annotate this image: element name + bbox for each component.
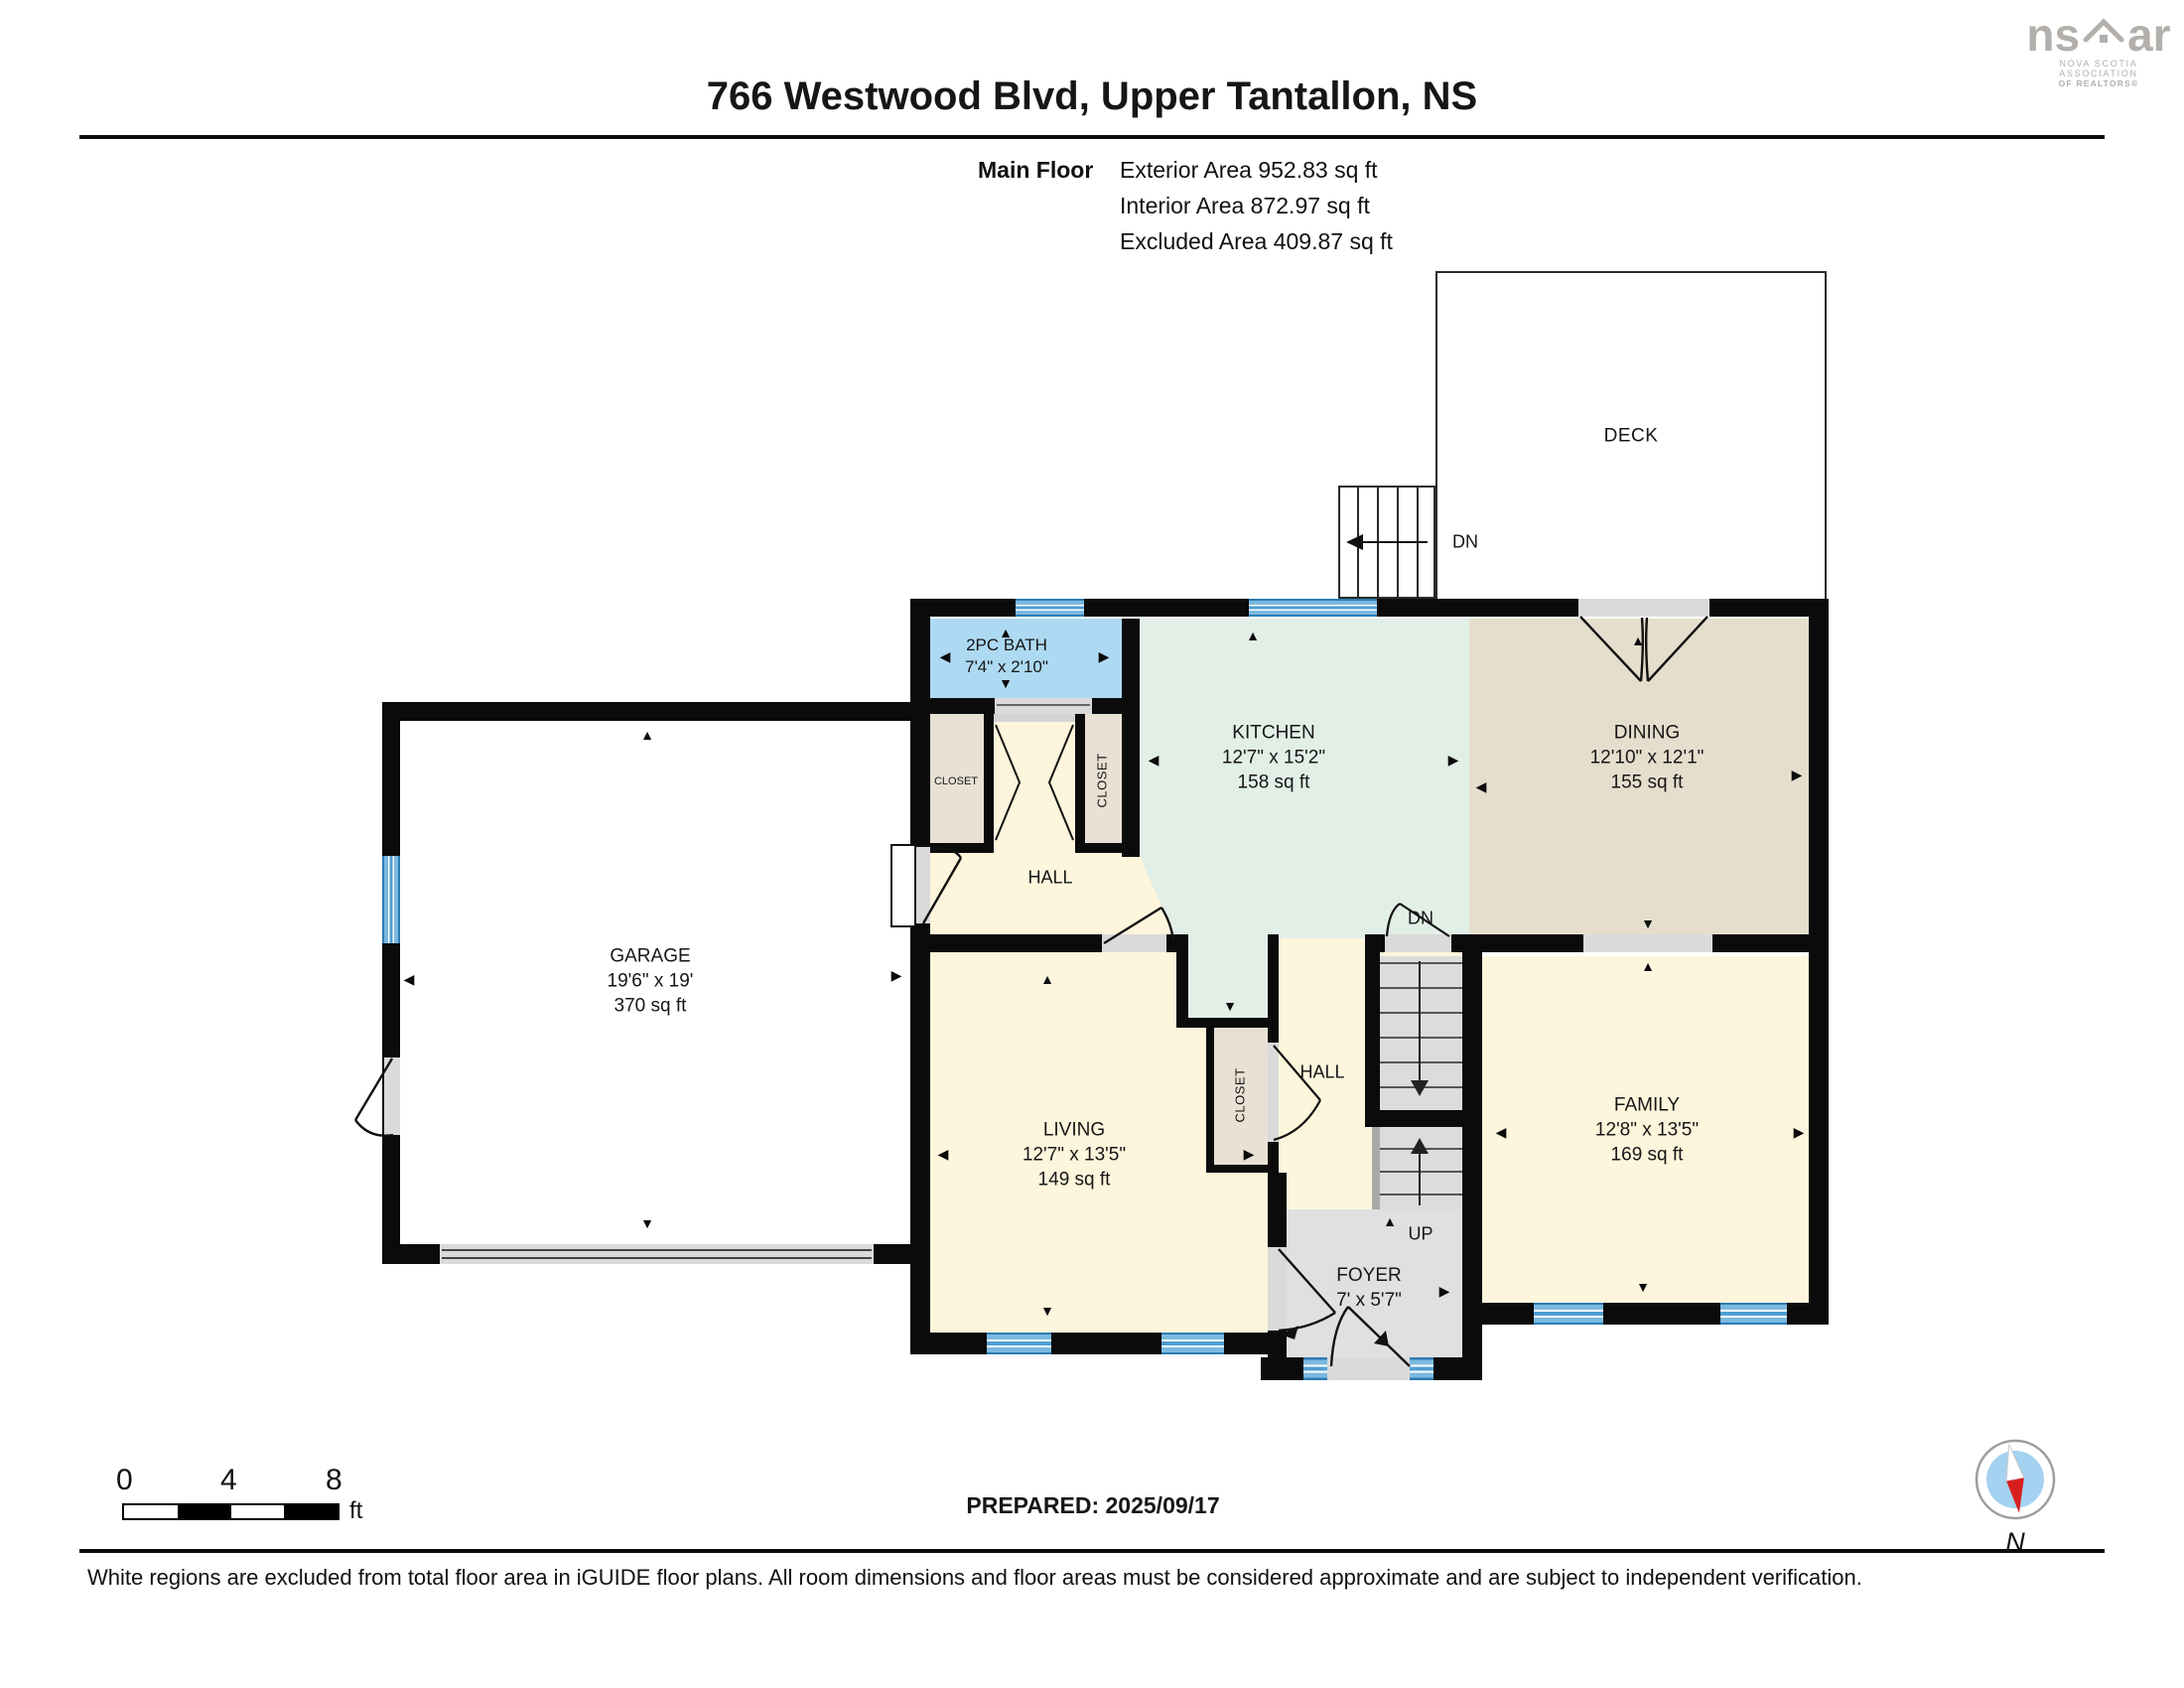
family-window-1: [1534, 1303, 1603, 1325]
interior-area: Interior Area 872.97 sq ft: [1120, 193, 1370, 219]
dim-arrow-kitchen-up: ▲: [1246, 629, 1260, 642]
scale-seg-1: [124, 1505, 178, 1518]
page-title: 766 Westwood Blvd, Upper Tantallon, NS: [707, 70, 1477, 122]
room-label-garage: GARAGE 19'6" x 19' 370 sq ft: [608, 944, 694, 1019]
dim-arrow-garage-down: ▼: [640, 1216, 654, 1230]
dim-arrow-bath-left: ◀: [940, 649, 951, 663]
family-area-label: 169 sq ft: [1595, 1143, 1699, 1168]
dim-arrow-family-down: ▼: [1636, 1280, 1650, 1294]
dim-arrow-kitchen-down: ▼: [1223, 999, 1237, 1013]
scale-bar-segments: [122, 1503, 340, 1520]
kitchen-dim: 12'7" x 15'2": [1222, 746, 1325, 771]
garage-door-opening: [440, 1244, 874, 1264]
garage-dim: 19'6" x 19': [608, 969, 694, 994]
room-label-hall-upper: HALL: [1027, 866, 1072, 889]
scale-seg-4: [284, 1505, 338, 1518]
family-dim: 12'8" x 13'5": [1595, 1118, 1699, 1143]
closet-left-label: CLOSET: [934, 774, 978, 788]
dim-arrow-living-up: ▲: [1040, 972, 1054, 986]
bifold-track: [994, 714, 1075, 722]
room-label-kitchen: KITCHEN 12'7" x 15'2" 158 sq ft: [1222, 721, 1325, 795]
foyer-sidelight-2: [1410, 1357, 1433, 1380]
closet-right-label: CLOSET: [1095, 753, 1112, 807]
dim-arrow-foyer-right: ▶: [1439, 1284, 1450, 1298]
dining-dim: 12'10" x 12'1": [1590, 746, 1705, 771]
dim-arrow-dining-down: ▼: [1641, 916, 1655, 930]
dim-arrow-kitchen-left: ◀: [1149, 753, 1160, 767]
scale-tick-8: 8: [326, 1464, 342, 1497]
dim-arrow-bath-up: ▲: [999, 626, 1013, 639]
dining-name: DINING: [1590, 721, 1705, 746]
wall-right-main: [1809, 599, 1829, 1325]
compass-north-label: N: [1956, 1527, 2075, 1558]
house-icon: [2082, 16, 2125, 54]
bath-window: [1016, 599, 1084, 617]
living-area-label: 149 sq ft: [1023, 1168, 1126, 1193]
floor-label: Main Floor: [978, 157, 1093, 184]
kitchen-area-label: 158 sq ft: [1222, 771, 1325, 795]
dim-arrow-garage-up: ▲: [640, 728, 654, 742]
disclaimer: White regions are excluded from total fl…: [87, 1565, 1974, 1591]
exterior-area: Exterior Area 952.83 sq ft: [1120, 157, 1378, 184]
wall-garage-left: [382, 702, 400, 1264]
dining-area-label: 155 sq ft: [1590, 771, 1705, 795]
stairs-dn-area: [1380, 956, 1462, 1110]
dim-arrow-foyer-up: ▲: [1383, 1214, 1397, 1228]
scale-seg-3: [231, 1505, 285, 1518]
stairs-up-area: [1380, 1127, 1462, 1209]
garage-side-door-opening: [384, 1057, 400, 1135]
hall-living-opening: [1102, 934, 1166, 952]
dim-arrow-living-right: ▶: [1244, 1147, 1255, 1161]
wall-living-bottom: [910, 1333, 1287, 1354]
excluded-area: Excluded Area 409.87 sq ft: [1120, 228, 1393, 255]
living-window-1: [987, 1333, 1051, 1354]
wall-closet-lower-left: [1206, 1026, 1214, 1173]
garage-name: GARAGE: [608, 944, 694, 969]
dim-arrow-family-left: ◀: [1496, 1125, 1507, 1139]
header-rule: [79, 135, 2105, 139]
dim-arrow-family-right: ▶: [1794, 1125, 1805, 1139]
compass-icon: [1956, 1430, 2075, 1529]
kitchen-name: KITCHEN: [1222, 721, 1325, 746]
wall-closet-right: [1075, 714, 1085, 843]
scale-bar: 0 4 8 ft: [111, 1464, 359, 1501]
scale-unit: ft: [349, 1497, 362, 1525]
dim-arrow-kitchen-right: ▶: [1448, 753, 1459, 767]
stairs-rail: [1372, 1127, 1380, 1209]
dim-arrow-bath-down: ▼: [999, 676, 1013, 690]
dim-arrow-dining-left: ◀: [1476, 779, 1487, 793]
stairs-dn-label: DN: [1408, 907, 1433, 929]
garage-hall-door-panel: [890, 844, 916, 927]
deck-stairs-dn-label: DN: [1452, 530, 1478, 553]
compass: N: [1956, 1430, 2075, 1558]
nsar-logo-line2: OF REALTORS®: [2019, 78, 2178, 88]
foyer-sidelight-1: [1303, 1357, 1327, 1380]
dim-arrow-garage-right: ▶: [891, 968, 902, 982]
deck-stairs: [1338, 486, 1435, 599]
scale-tick-4: 4: [220, 1464, 237, 1497]
deck-french-door-opening: [1578, 599, 1709, 617]
wall-closet-lower-right: [1268, 1142, 1279, 1173]
closet-lower-door-opening: [1268, 1043, 1279, 1142]
dim-arrow-bath-right: ▶: [1099, 649, 1110, 663]
room-label-living: LIVING 12'7" x 13'5" 149 sq ft: [1023, 1118, 1126, 1193]
scale-seg-2: [178, 1505, 231, 1518]
garage-area: 370 sq ft: [608, 994, 694, 1019]
room-label-bath: 2PC BATH 7'4" x 2'10": [965, 634, 1048, 678]
front-door-opening: [1327, 1357, 1410, 1380]
room-label-family: FAMILY 12'8" x 13'5" 169 sq ft: [1595, 1093, 1699, 1168]
living-foyer-door-opening: [1268, 1247, 1287, 1331]
wall-corridor-left: [1176, 934, 1188, 1026]
footer-rule: [79, 1549, 2105, 1553]
garage-window: [382, 856, 400, 943]
wall-closet-right-bottom: [1075, 843, 1140, 853]
stairs-dn-door-opening: [1385, 934, 1451, 952]
living-dim: 12'7" x 13'5": [1023, 1143, 1126, 1168]
room-label-foyer: FOYER 7' x 5'7": [1336, 1263, 1402, 1313]
wall-foyer-left-upper: [1268, 1173, 1287, 1247]
prepared-date: PREPARED: 2025/09/17: [966, 1491, 1219, 1521]
nsar-logo-ar: ar: [2127, 16, 2170, 54]
dim-arrow-family-up: ▲: [1641, 959, 1655, 973]
nsar-logo-ns: ns: [2026, 16, 2080, 54]
closet-lower-label: CLOSET: [1233, 1067, 1250, 1122]
family-window-2: [1720, 1303, 1787, 1325]
bath-door-opening: [995, 698, 1092, 714]
wall-closet-left-bottom: [930, 843, 994, 853]
family-name: FAMILY: [1595, 1093, 1699, 1118]
floorplan-page: 766 Westwood Blvd, Upper Tantallon, NS n…: [0, 0, 2184, 1688]
wall-garage-top: [382, 702, 930, 721]
nsar-logo: ns ar NOVA SCOTIA ASSOCIATION OF REALTOR…: [2019, 16, 2178, 88]
wall-corridor-right: [1268, 934, 1279, 1043]
stairs-up-label: UP: [1408, 1222, 1433, 1245]
wall-kitchen-left: [1122, 619, 1140, 857]
nsar-logo-line1: NOVA SCOTIA ASSOCIATION: [2019, 59, 2178, 78]
room-label-deck: DECK: [1604, 425, 1659, 450]
nsar-logo-brand: ns ar: [2019, 16, 2178, 54]
foyer-dim: 7' x 5'7": [1336, 1288, 1402, 1313]
living-window-2: [1161, 1333, 1224, 1354]
scale-tick-0: 0: [116, 1464, 133, 1497]
dim-arrow-living-left: ◀: [938, 1147, 949, 1161]
wall-corridor-bottom: [1176, 1018, 1279, 1028]
foyer-name: FOYER: [1336, 1263, 1402, 1288]
dim-arrow-garage-left: ◀: [404, 972, 415, 986]
dining-family-opening: [1583, 934, 1712, 952]
room-label-dining: DINING 12'10" x 12'1" 155 sq ft: [1590, 721, 1705, 795]
dim-arrow-living-down: ▼: [1040, 1304, 1054, 1318]
wall-stairs-left: [1365, 934, 1380, 1110]
room-label-hall-lower: HALL: [1299, 1060, 1344, 1083]
kitchen-window: [1249, 599, 1377, 617]
dim-arrow-dining-door-up: ▲: [1631, 633, 1645, 647]
dim-arrow-dining-right: ▶: [1792, 768, 1803, 781]
wall-closet-left: [984, 714, 994, 843]
living-name: LIVING: [1023, 1118, 1126, 1143]
